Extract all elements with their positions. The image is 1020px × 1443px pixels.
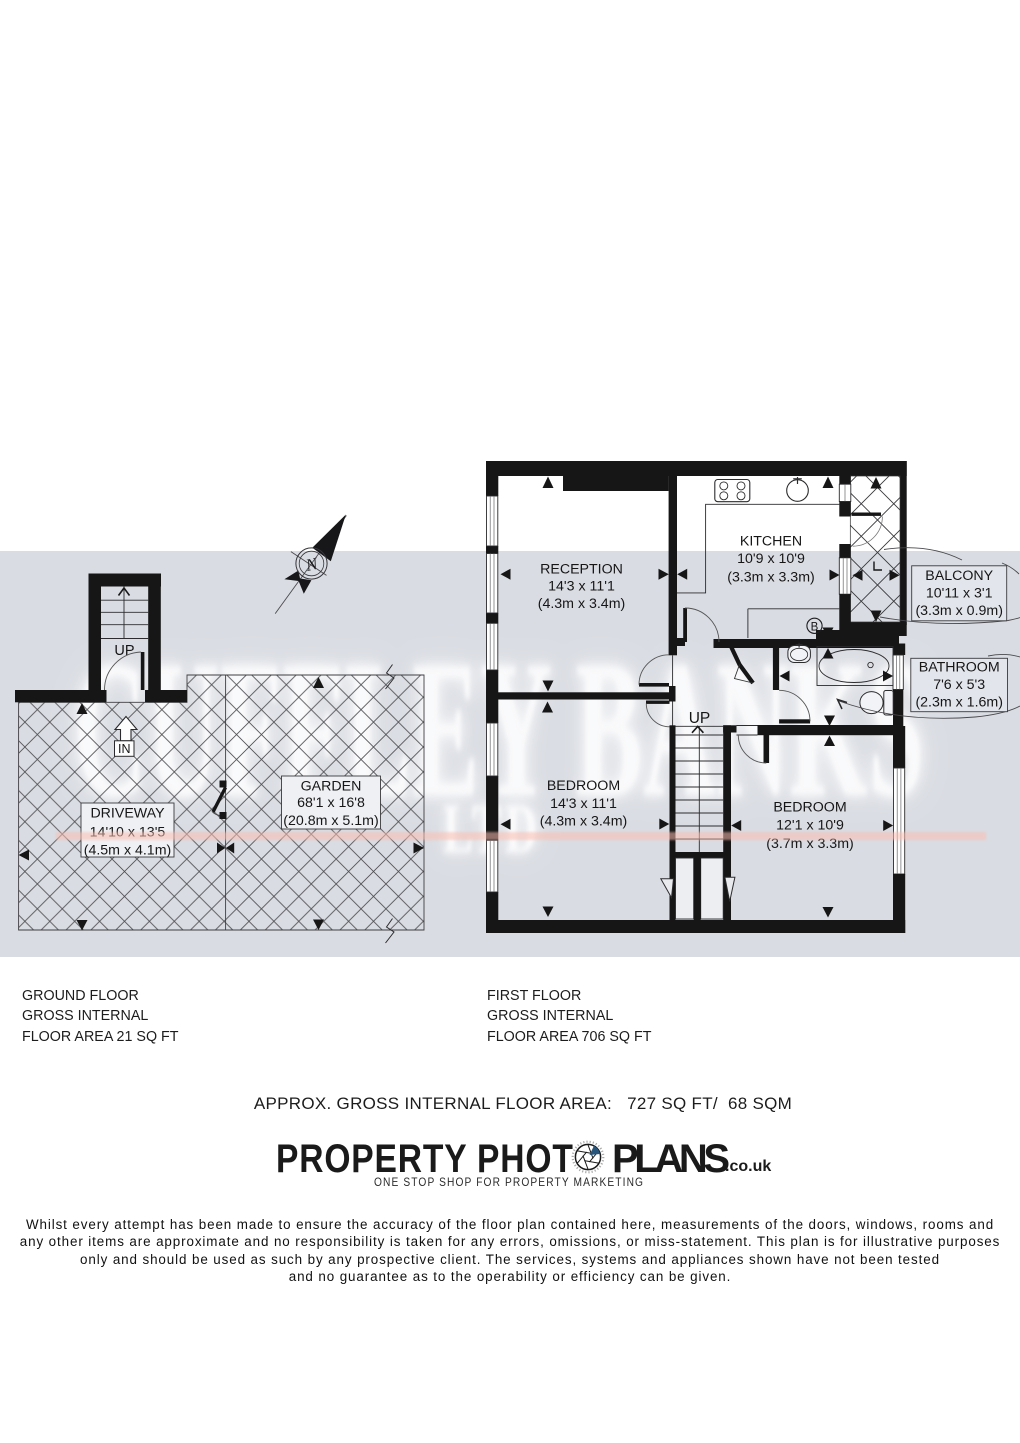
svg-text:BEDROOM: BEDROOM bbox=[773, 800, 846, 816]
svg-text:BEDROOM: BEDROOM bbox=[547, 778, 620, 794]
svg-text:14'3 x 11'1: 14'3 x 11'1 bbox=[548, 579, 615, 595]
svg-text:KITCHEN: KITCHEN bbox=[740, 533, 802, 549]
svg-text:10'9 x 10'9: 10'9 x 10'9 bbox=[737, 551, 805, 567]
svg-text:RECEPTION: RECEPTION bbox=[540, 561, 623, 577]
svg-text:68'1 x 16'8: 68'1 x 16'8 bbox=[297, 795, 365, 811]
svg-text:(4.3m x 3.4m): (4.3m x 3.4m) bbox=[538, 596, 626, 612]
svg-text:(2.3m x 1.6m): (2.3m x 1.6m) bbox=[915, 695, 1003, 711]
svg-text:14'3 x 11'1: 14'3 x 11'1 bbox=[550, 796, 617, 812]
svg-text:7'6 x 5'3: 7'6 x 5'3 bbox=[933, 677, 985, 693]
svg-text:(3.3m x 0.9m): (3.3m x 0.9m) bbox=[915, 603, 1003, 619]
svg-text:(20.8m x 5.1m): (20.8m x 5.1m) bbox=[283, 813, 378, 829]
svg-text:IN: IN bbox=[118, 742, 131, 756]
svg-text:UP: UP bbox=[689, 710, 711, 727]
svg-text:10'11 x 3'1: 10'11 x 3'1 bbox=[926, 586, 993, 602]
svg-text:.co.uk: .co.uk bbox=[725, 1158, 771, 1175]
svg-text:GARDEN: GARDEN bbox=[301, 779, 362, 795]
svg-text:(3.3m x 3.3m): (3.3m x 3.3m) bbox=[727, 569, 815, 585]
svg-text:PROPERTY PHOT: PROPERTY PHOT bbox=[276, 1136, 574, 1180]
svg-text:DRIVEWAY: DRIVEWAY bbox=[90, 806, 165, 822]
svg-text:BATHROOM: BATHROOM bbox=[919, 660, 1000, 676]
svg-text:(4.3m x 3.4m): (4.3m x 3.4m) bbox=[540, 814, 628, 830]
svg-text:(4.5m x 4.1m): (4.5m x 4.1m) bbox=[84, 843, 172, 859]
svg-text:B: B bbox=[811, 621, 819, 633]
svg-text:BALCONY: BALCONY bbox=[925, 568, 993, 584]
